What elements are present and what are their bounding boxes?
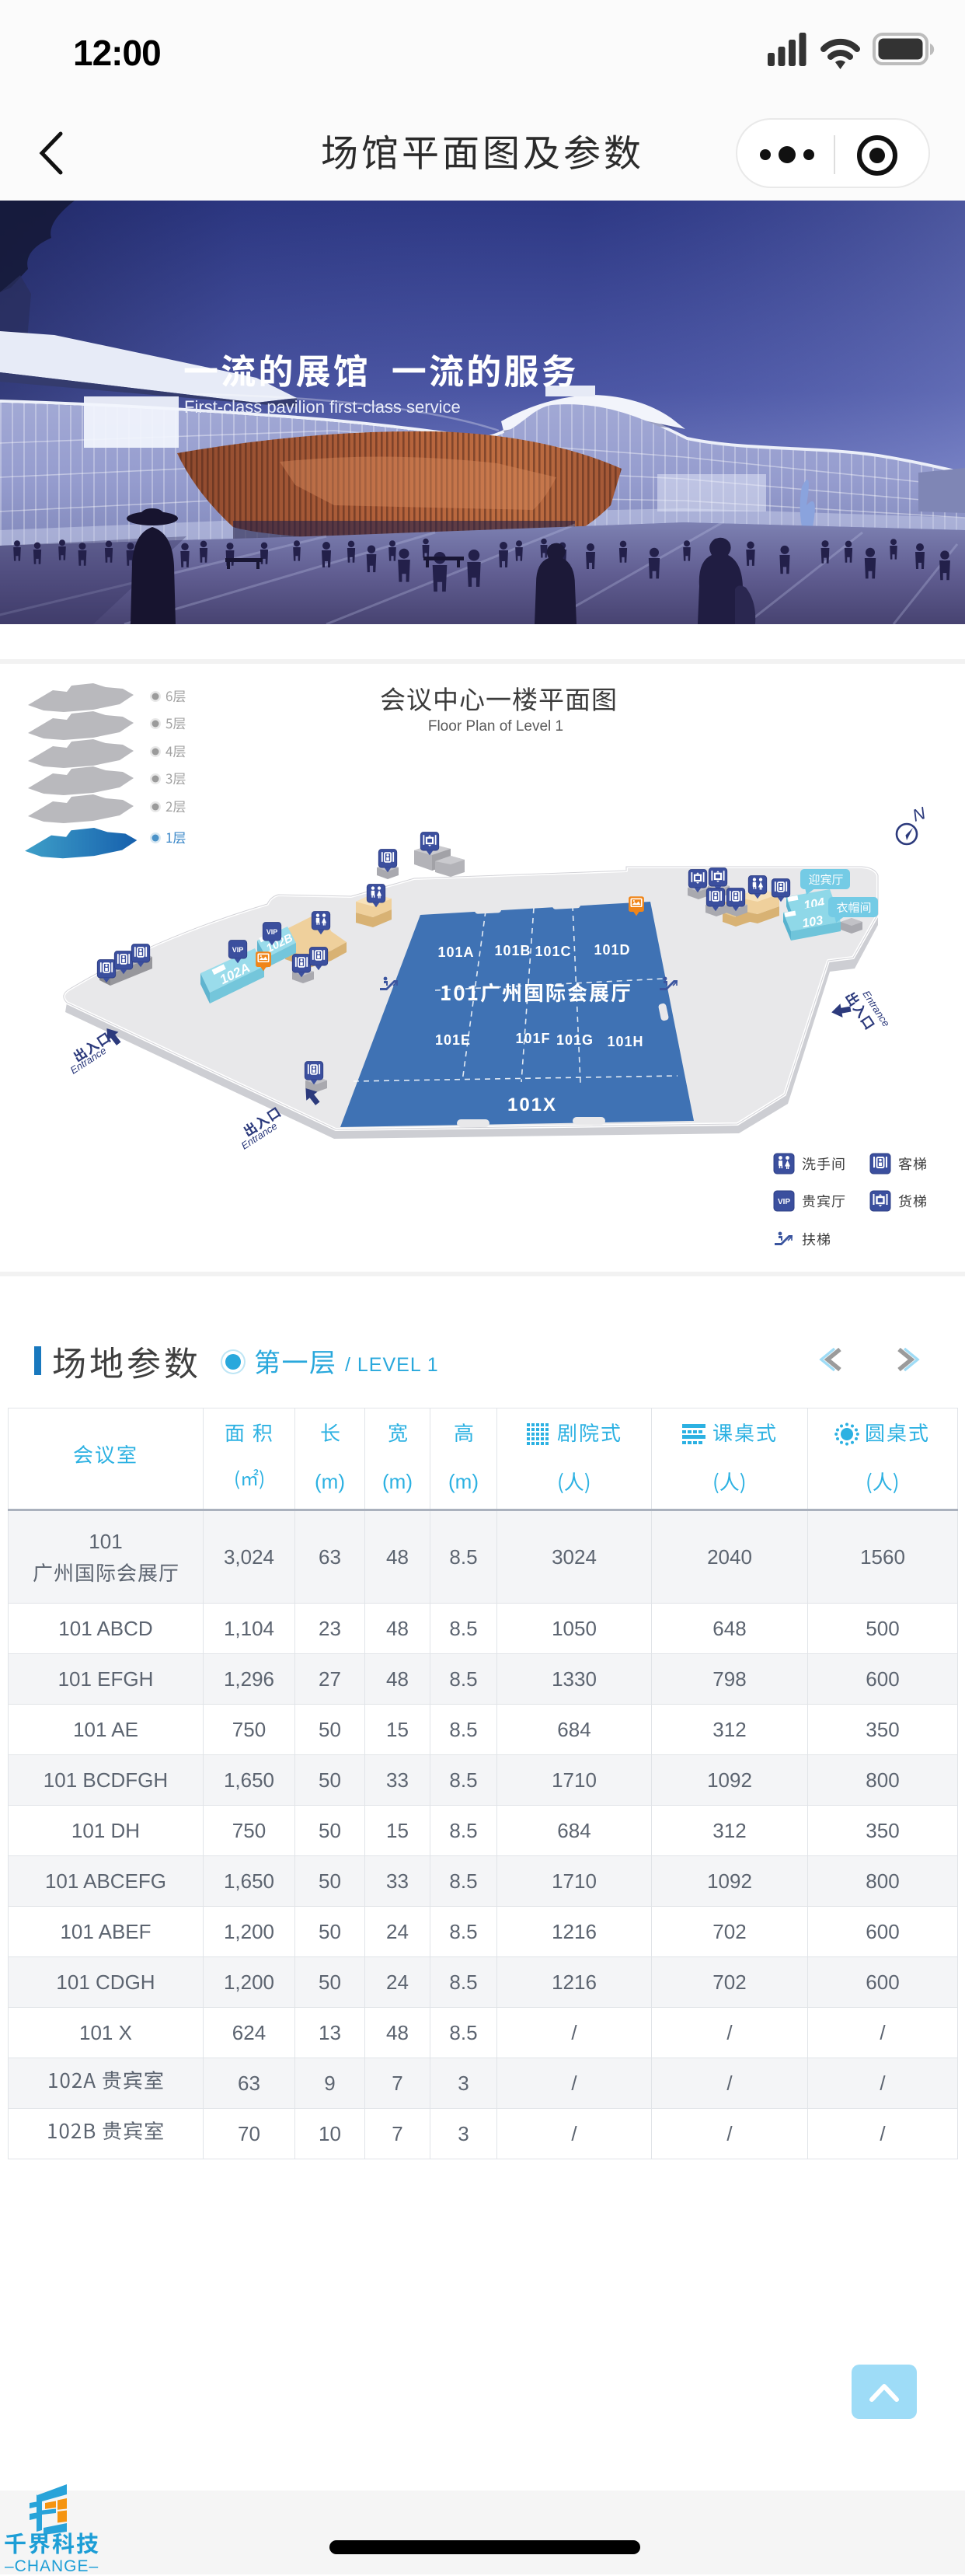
svg-text:First-class pavilion first-cla: First-class pavilion first-class service <box>184 397 461 417</box>
svg-text:101D: 101D <box>594 942 630 958</box>
svg-text:Entrance: Entrance <box>239 1120 280 1152</box>
svg-text:101C: 101C <box>535 944 571 959</box>
svg-text:101F: 101F <box>515 1031 550 1046</box>
svg-text:101X: 101X <box>507 1094 557 1115</box>
svg-text:101G: 101G <box>556 1032 594 1048</box>
svg-text:101A: 101A <box>437 944 474 960</box>
svg-text:Entrance: Entrance <box>860 989 892 1029</box>
svg-text:Entrance: Entrance <box>68 1045 109 1077</box>
svg-text:101E: 101E <box>435 1032 471 1048</box>
svg-text:101B: 101B <box>494 943 531 958</box>
svg-text:101H: 101H <box>607 1034 643 1049</box>
svg-text:N: N <box>910 803 928 826</box>
